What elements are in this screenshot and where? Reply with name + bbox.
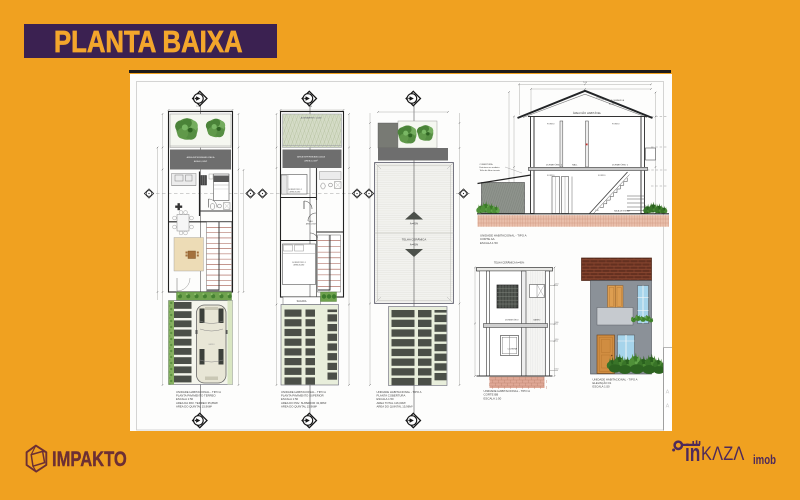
svg-text:ÁREA IMPERMEABILIZADA: ÁREA IMPERMEABILIZADA [297,156,325,159]
svg-text:FORRO: FORRO [547,124,555,126]
svg-text:A: A [666,390,670,396]
svg-text:ÁREA 8,00M²: ÁREA 8,00M² [290,191,301,194]
svg-text:7.00: 7.00 [308,106,313,108]
svg-text:HALL: HALL [572,164,578,167]
svg-text:FORRO: FORRO [612,124,620,126]
svg-text:AREA DO QUINTAL 15,96M²: AREA DO QUINTAL 15,96M² [176,404,212,408]
svg-text:AREA DO QUINTAL 15,96M²: AREA DO QUINTAL 15,96M² [377,404,413,408]
svg-text:ÁREA 0,00M²: ÁREA 0,00M² [304,160,318,163]
svg-text:TELHA CERÂMICA A=45%: TELHA CERÂMICA A=45% [494,262,525,265]
svg-text:DORMITÓRIO 2: DORMITÓRIO 2 [288,188,302,191]
svg-text:DORMITÓRIO 1: DORMITÓRIO 1 [612,164,629,167]
svg-text:DORMITÓRIO 1: DORMITÓRIO 1 [292,261,306,264]
svg-text:ÁREA 8,00M²: ÁREA 8,00M² [294,264,305,267]
svg-text:1.10: 1.10 [555,339,559,341]
svg-text:ESCALA 1:50: ESCALA 1:50 [593,384,611,388]
svg-text:HALL: HALL [309,220,314,223]
svg-text:Estrutura em madeira: Estrutura em madeira [480,166,501,169]
svg-text:7.00: 7.00 [583,82,588,84]
svg-text:1.10: 1.10 [595,210,599,212]
svg-text:A=45%: A=45% [609,103,616,106]
svg-text:A: A [666,404,670,410]
svg-text:A=45%: A=45% [410,244,419,247]
svg-text:FORRO: FORRO [598,175,606,177]
svg-text:DORMITÓRIO 2: DORMITÓRIO 2 [546,164,563,167]
svg-text:AREA DO QUINTAL 15,96M²: AREA DO QUINTAL 15,96M² [281,404,317,408]
svg-text:TELHA CERÂMICA: TELHA CERÂMICA [402,237,427,242]
svg-text:DORMITÓRIO: DORMITÓRIO [505,319,519,322]
svg-text:CARRO: CARRO [208,343,215,346]
svg-text:ESCALA 1:50: ESCALA 1:50 [484,396,502,400]
svg-text:0.10: 0.10 [555,368,559,370]
svg-text:ÁREA IMPERMEABILIZADA: ÁREA IMPERMEABILIZADA [187,156,215,159]
svg-text:ÁREA NÃO HABITÁVEL: ÁREA NÃO HABITÁVEL [573,110,602,115]
svg-text:SALA DE ESTAR: SALA DE ESTAR [614,210,631,213]
svg-text:BANHO: BANHO [534,319,541,322]
svg-text:TELHA CERÂMICA: TELHA CERÂMICA [605,99,625,102]
svg-text:ESCALA 1:50: ESCALA 1:50 [480,241,498,245]
svg-text:Telha de fibro cimento: Telha de fibro cimento [480,169,501,172]
svg-text:A=45%: A=45% [410,223,419,226]
svg-text:SACADA: SACADA [297,300,307,303]
svg-text:ÁREA 0,00M²: ÁREA 0,00M² [194,160,208,163]
svg-text:2.60: 2.60 [555,322,559,324]
svg-text:ALINHAMENTO 1,50M: ALINHAMENTO 1,50M [301,117,322,120]
svg-text:COZINHA: COZINHA [508,348,518,351]
svg-text:ÁREA 1,96M²: ÁREA 1,96M² [306,223,317,226]
svg-text:7.00: 7.00 [196,106,201,108]
svg-text:1.10: 1.10 [555,283,559,285]
svg-text:COBERTURA: COBERTURA [480,163,494,166]
